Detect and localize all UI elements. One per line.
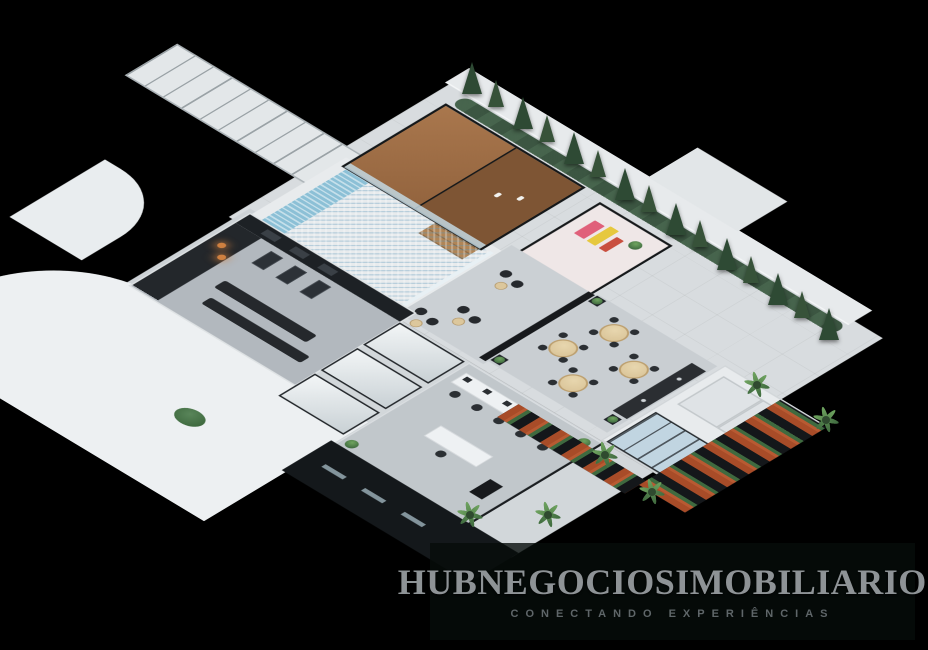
tv-panel: [469, 479, 503, 499]
treadmill: [275, 265, 307, 284]
gym-machine: [317, 263, 338, 276]
gym-machine: [289, 246, 310, 259]
gym-bar-counter: [133, 223, 262, 300]
bridge-walkway: [125, 44, 361, 186]
plant: [625, 239, 645, 251]
office-chair: [433, 449, 449, 458]
dining-table: [610, 354, 658, 383]
chair: [628, 328, 641, 336]
chair: [628, 353, 641, 361]
gym-machine: [261, 229, 282, 242]
chair: [587, 379, 600, 387]
potted-tree: [603, 414, 621, 425]
dining-table: [590, 318, 638, 347]
dining-table: [539, 333, 587, 362]
curved-wall-wing: [10, 159, 178, 260]
office-chair: [447, 390, 463, 399]
treadmill: [299, 280, 331, 299]
side-table: [492, 280, 510, 291]
side-table: [407, 318, 425, 329]
facade-window: [361, 488, 386, 503]
chair: [557, 331, 570, 339]
treadmill: [251, 251, 283, 270]
floorplan-render: HUBNEGOCIOSIMOBILIARIOS CONECTANDO EXPER…: [0, 0, 928, 650]
chair: [567, 366, 580, 374]
watermark: HUBNEGOCIOSIMOBILIARIOS CONECTANDO EXPER…: [430, 543, 915, 640]
brand-logo-text: HUBNEGOCIOSIMOBILIARIOS: [398, 564, 928, 600]
side-table: [449, 316, 467, 327]
chair: [608, 316, 621, 324]
tagline-text: CONECTANDO EXPERIÊNCIAS: [511, 608, 835, 620]
office-chair: [469, 403, 485, 412]
dining-table: [549, 368, 597, 397]
facade-window: [321, 464, 346, 479]
chair: [577, 344, 590, 352]
chair: [648, 365, 661, 373]
facade-window: [401, 512, 426, 527]
meeting-desk: [424, 425, 493, 467]
